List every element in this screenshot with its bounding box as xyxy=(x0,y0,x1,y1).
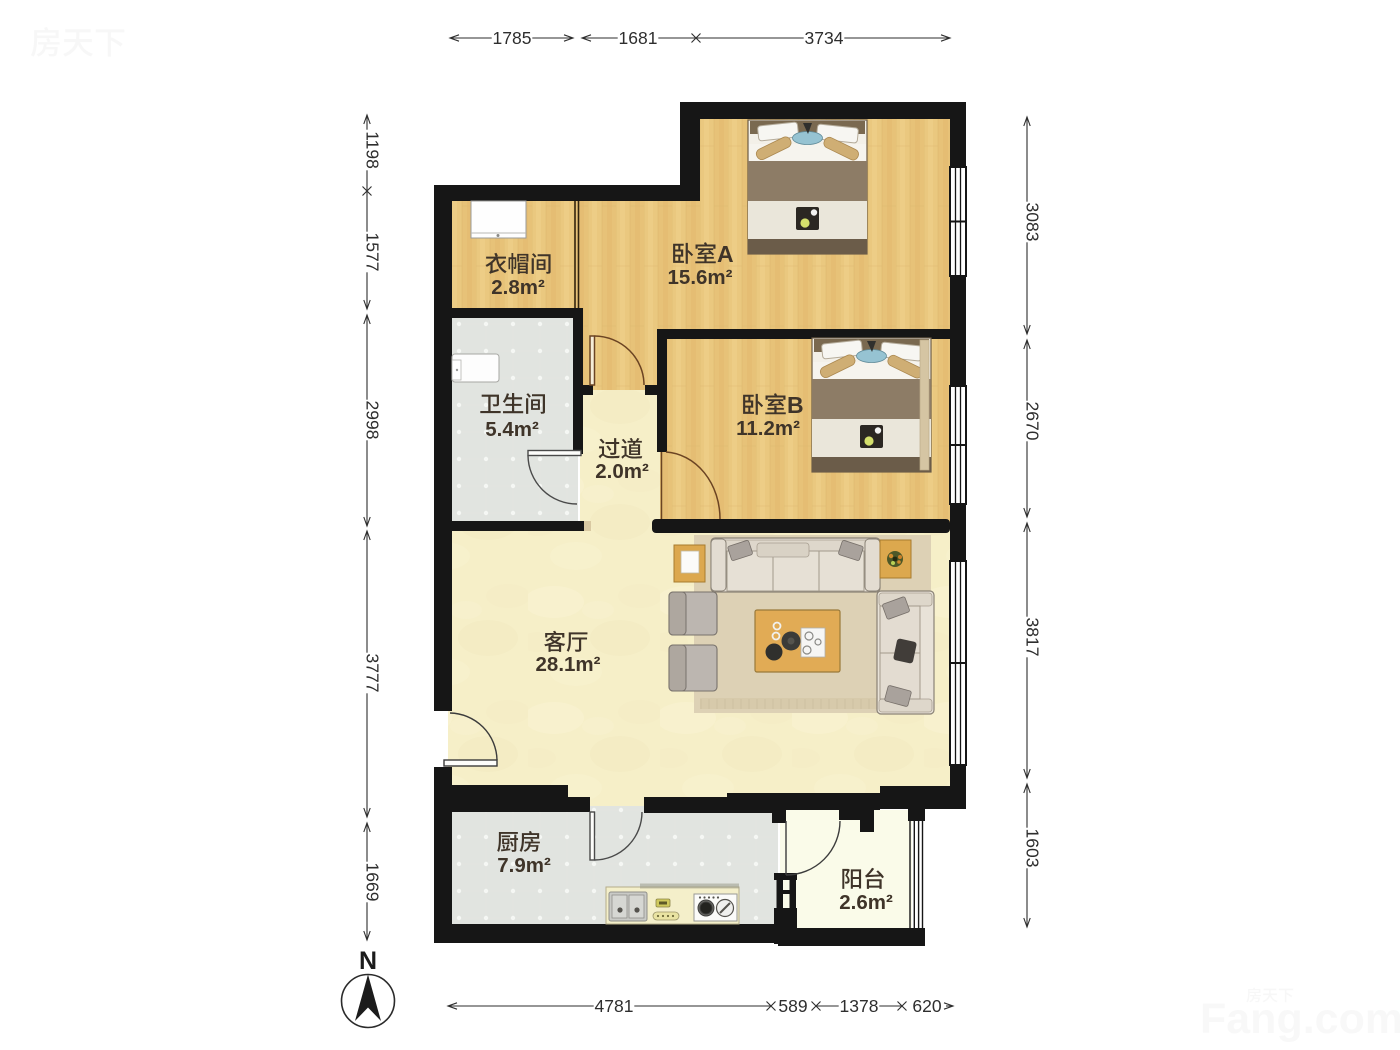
svg-text:4781: 4781 xyxy=(595,996,634,1016)
svg-text:1785: 1785 xyxy=(493,28,532,48)
svg-text:A: A xyxy=(717,241,734,267)
svg-text:11.2m²: 11.2m² xyxy=(736,417,800,440)
svg-text:15.6m²: 15.6m² xyxy=(668,266,733,289)
svg-text:589: 589 xyxy=(778,996,807,1016)
svg-text:3083: 3083 xyxy=(1022,203,1042,242)
svg-text:2998: 2998 xyxy=(362,401,382,440)
svg-text:1577: 1577 xyxy=(362,233,382,272)
svg-text:N: N xyxy=(359,947,377,975)
svg-text:620: 620 xyxy=(912,996,941,1016)
svg-text:5.4m²: 5.4m² xyxy=(485,418,539,441)
svg-text:1378: 1378 xyxy=(840,996,879,1016)
svg-text:3817: 3817 xyxy=(1022,618,1042,657)
svg-text:28.1m²: 28.1m² xyxy=(536,653,601,676)
svg-text:3734: 3734 xyxy=(805,28,844,48)
svg-text:B: B xyxy=(787,392,804,418)
svg-text:1198: 1198 xyxy=(362,131,382,169)
svg-text:Fang.com: Fang.com xyxy=(1200,995,1400,1043)
svg-text:2.6m²: 2.6m² xyxy=(839,891,893,914)
svg-text:1669: 1669 xyxy=(362,863,382,902)
svg-text:3777: 3777 xyxy=(362,654,382,693)
svg-text:2.8m²: 2.8m² xyxy=(491,276,545,299)
svg-text:1603: 1603 xyxy=(1022,829,1042,868)
svg-text:7.9m²: 7.9m² xyxy=(497,854,551,877)
svg-text:2670: 2670 xyxy=(1022,402,1042,441)
svg-text:2.0m²: 2.0m² xyxy=(595,460,649,483)
svg-text:1681: 1681 xyxy=(619,28,658,48)
